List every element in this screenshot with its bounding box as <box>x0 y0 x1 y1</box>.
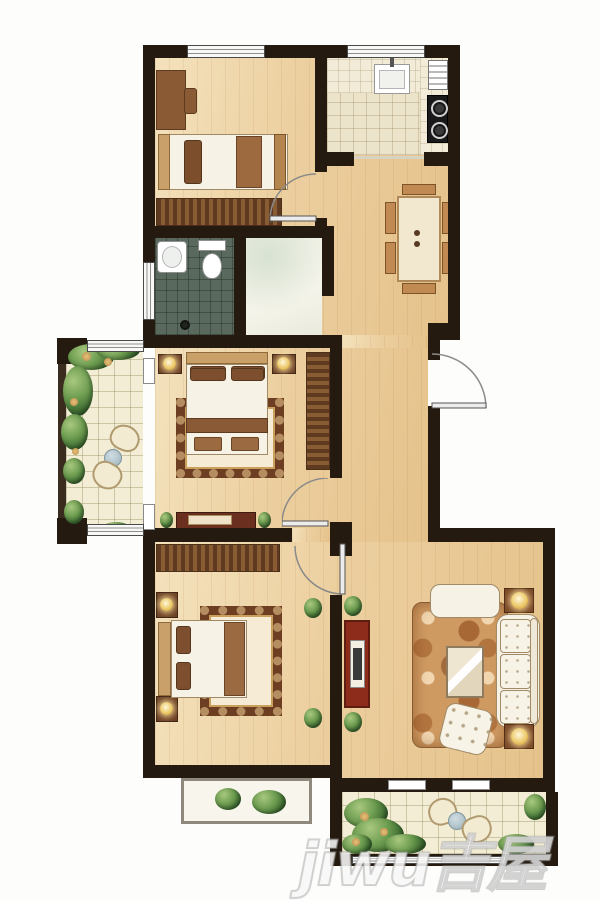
coffee-table <box>446 646 484 698</box>
floor-door-fill <box>292 528 330 542</box>
master-bench-cushion <box>231 437 259 451</box>
bed-headboard <box>158 622 171 696</box>
bed-pillow <box>176 662 191 690</box>
plant-icon <box>63 458 85 484</box>
wall <box>448 45 460 335</box>
window <box>87 524 144 536</box>
balcony-door-leaf <box>452 780 490 790</box>
dining-table <box>397 196 441 282</box>
balcony-door-leaf <box>388 780 426 790</box>
dresser-top <box>188 515 232 525</box>
floor-drain-icon <box>180 320 190 330</box>
lamp-icon <box>160 598 173 611</box>
teacup-icon <box>414 230 420 236</box>
flower-icon <box>72 448 79 455</box>
plant-icon <box>215 788 241 810</box>
plant-icon <box>252 790 286 814</box>
burner-icon <box>431 100 448 117</box>
desk <box>156 70 186 130</box>
desk-chair <box>184 88 197 114</box>
window <box>347 45 425 58</box>
wall <box>543 542 555 792</box>
lamp-icon <box>511 592 528 609</box>
master-wardrobe <box>306 352 330 470</box>
master-bench-cushion <box>194 437 222 451</box>
sofa-cushion <box>500 619 531 653</box>
bed-pillow <box>184 140 202 184</box>
window <box>143 358 155 384</box>
wall <box>330 778 555 792</box>
lamp-icon <box>511 728 528 745</box>
plant-icon <box>160 512 173 528</box>
plant-icon <box>63 366 93 416</box>
teacup-icon <box>414 241 420 247</box>
sofa-cushion <box>500 654 531 689</box>
utility-floor <box>246 238 322 335</box>
wall <box>234 238 246 338</box>
loveseat <box>430 584 500 618</box>
door-swing-bedroom-bottom <box>294 542 348 598</box>
toilet-tank <box>198 240 226 251</box>
door-swing-bedroom-top <box>268 172 318 222</box>
dining-chair <box>402 283 436 294</box>
master-pillow <box>231 368 264 381</box>
wardrobe <box>156 544 280 572</box>
watermark: jiwu吉屋 <box>298 816 545 900</box>
dining-chair <box>385 202 396 234</box>
wall <box>143 540 155 778</box>
kitchen-threshold <box>354 156 424 159</box>
plant-icon <box>344 712 362 732</box>
wall <box>330 348 342 478</box>
wall <box>143 528 292 542</box>
kitchen-shelf <box>428 60 448 90</box>
floor-hall-strip <box>342 335 428 348</box>
wall <box>428 323 460 340</box>
wall <box>143 335 342 348</box>
window <box>187 45 265 58</box>
burner-icon <box>431 122 448 139</box>
wall <box>330 595 342 778</box>
sofa-cushion <box>500 690 531 724</box>
wall <box>322 238 334 296</box>
plant-icon <box>61 414 88 450</box>
master-pillow <box>190 368 226 381</box>
wall <box>428 406 440 532</box>
flower-icon <box>82 352 91 361</box>
plant-icon <box>304 598 322 618</box>
wall <box>428 528 555 542</box>
kitchen-sink-basin <box>379 70 405 89</box>
window <box>143 504 155 530</box>
bed-blanket <box>224 622 245 696</box>
tv-screen <box>353 648 362 680</box>
bathroom-sink-bowl <box>162 246 182 268</box>
bed-headboard <box>158 134 170 190</box>
door-swing-entry <box>430 352 488 410</box>
dining-chair <box>402 184 436 195</box>
flower-icon <box>70 398 78 406</box>
wall <box>143 226 334 238</box>
toilet-bowl <box>202 253 222 279</box>
lamp-icon <box>160 702 173 715</box>
lamp-icon <box>277 357 290 370</box>
kitchen-faucet <box>390 58 394 67</box>
plant-icon <box>258 512 271 528</box>
plant-icon <box>304 708 322 728</box>
master-blanket <box>186 418 268 433</box>
wardrobe <box>156 198 282 226</box>
plant-icon <box>344 596 362 616</box>
wall <box>424 152 460 166</box>
wall <box>318 152 354 166</box>
window <box>143 262 155 320</box>
sofa-back <box>530 618 538 724</box>
plant-icon <box>64 500 84 524</box>
flower-icon <box>104 358 112 366</box>
lamp-icon <box>163 357 176 370</box>
dining-chair <box>385 242 396 274</box>
bed-pillow <box>176 626 191 654</box>
floor-plan: jiwu吉屋 <box>0 0 600 900</box>
door-swing-master <box>282 478 332 528</box>
window <box>87 340 144 352</box>
master-headboard <box>186 352 268 364</box>
wall <box>143 765 342 778</box>
bed-blanket <box>236 136 262 188</box>
bay-window <box>181 778 312 824</box>
